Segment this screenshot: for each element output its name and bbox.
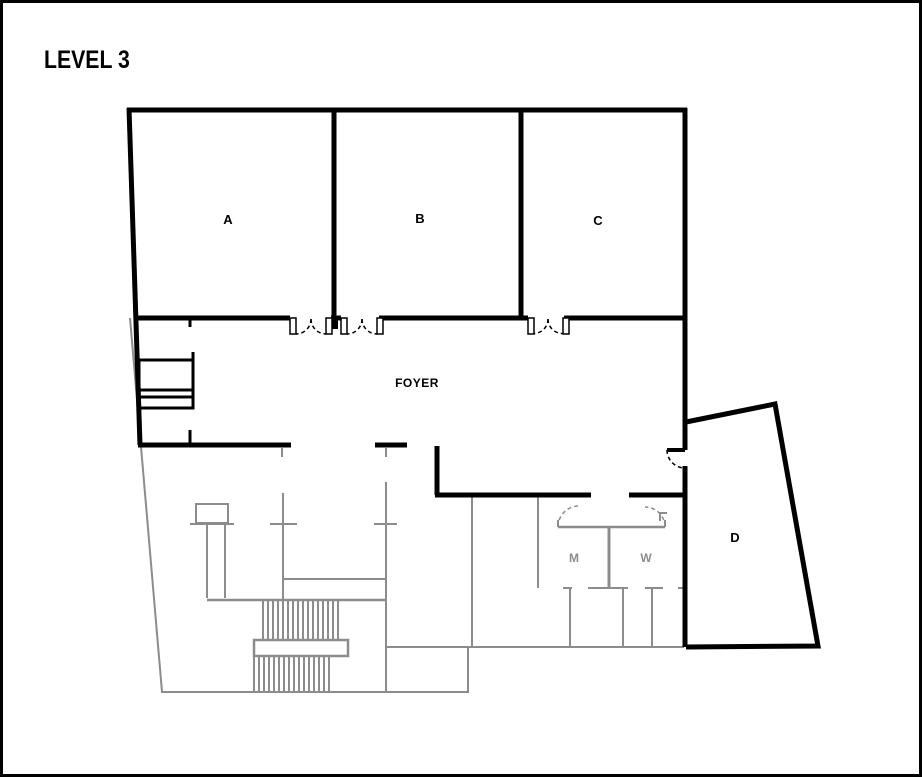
stair-flight-upper-hatching: [263, 601, 338, 640]
room-b-label: B: [415, 211, 424, 226]
lower-level-west-wall: [130, 318, 162, 692]
shaft-outline: [196, 504, 228, 523]
womens-door-swing-arc: [645, 507, 665, 527]
door-jamb: [563, 318, 569, 334]
door-jamb: [290, 318, 296, 334]
womens-room-label: W: [640, 551, 652, 565]
room-a-door-swing-arc: [311, 319, 326, 334]
floor-plan-drawing: LEVEL 3 A B C D FOYER M W: [0, 0, 922, 777]
room-c-door-swing-arc: [534, 319, 548, 334]
room-d-label: D: [730, 530, 739, 545]
mens-door-swing-arc: [558, 506, 579, 527]
mens-room-label: M: [569, 551, 579, 565]
room-c-door-swing-arc: [548, 319, 563, 334]
floor-plan-page: LEVEL 3 A B C D FOYER M W: [0, 0, 922, 777]
room-b-door-swing-arc: [347, 319, 362, 334]
stair-landing: [254, 640, 348, 656]
room-a-door-swing-arc: [296, 319, 311, 334]
door-jamb: [341, 318, 347, 334]
door-jamb: [377, 318, 383, 334]
room-d-door-swing-arc: [667, 450, 685, 468]
door-jamb: [528, 318, 534, 334]
foyer-label: FOYER: [395, 376, 439, 390]
room-c-label: C: [593, 213, 603, 228]
room-b-door-swing-arc: [362, 319, 377, 334]
foyer-stair-box: [139, 360, 193, 408]
room-a-label: A: [223, 212, 233, 227]
stair-flight-lower-hatching: [254, 656, 329, 691]
door-jamb: [326, 318, 332, 334]
page-title: LEVEL 3: [44, 45, 130, 73]
room-d-walls: [686, 404, 818, 647]
lower-level-outline: [130, 318, 684, 693]
